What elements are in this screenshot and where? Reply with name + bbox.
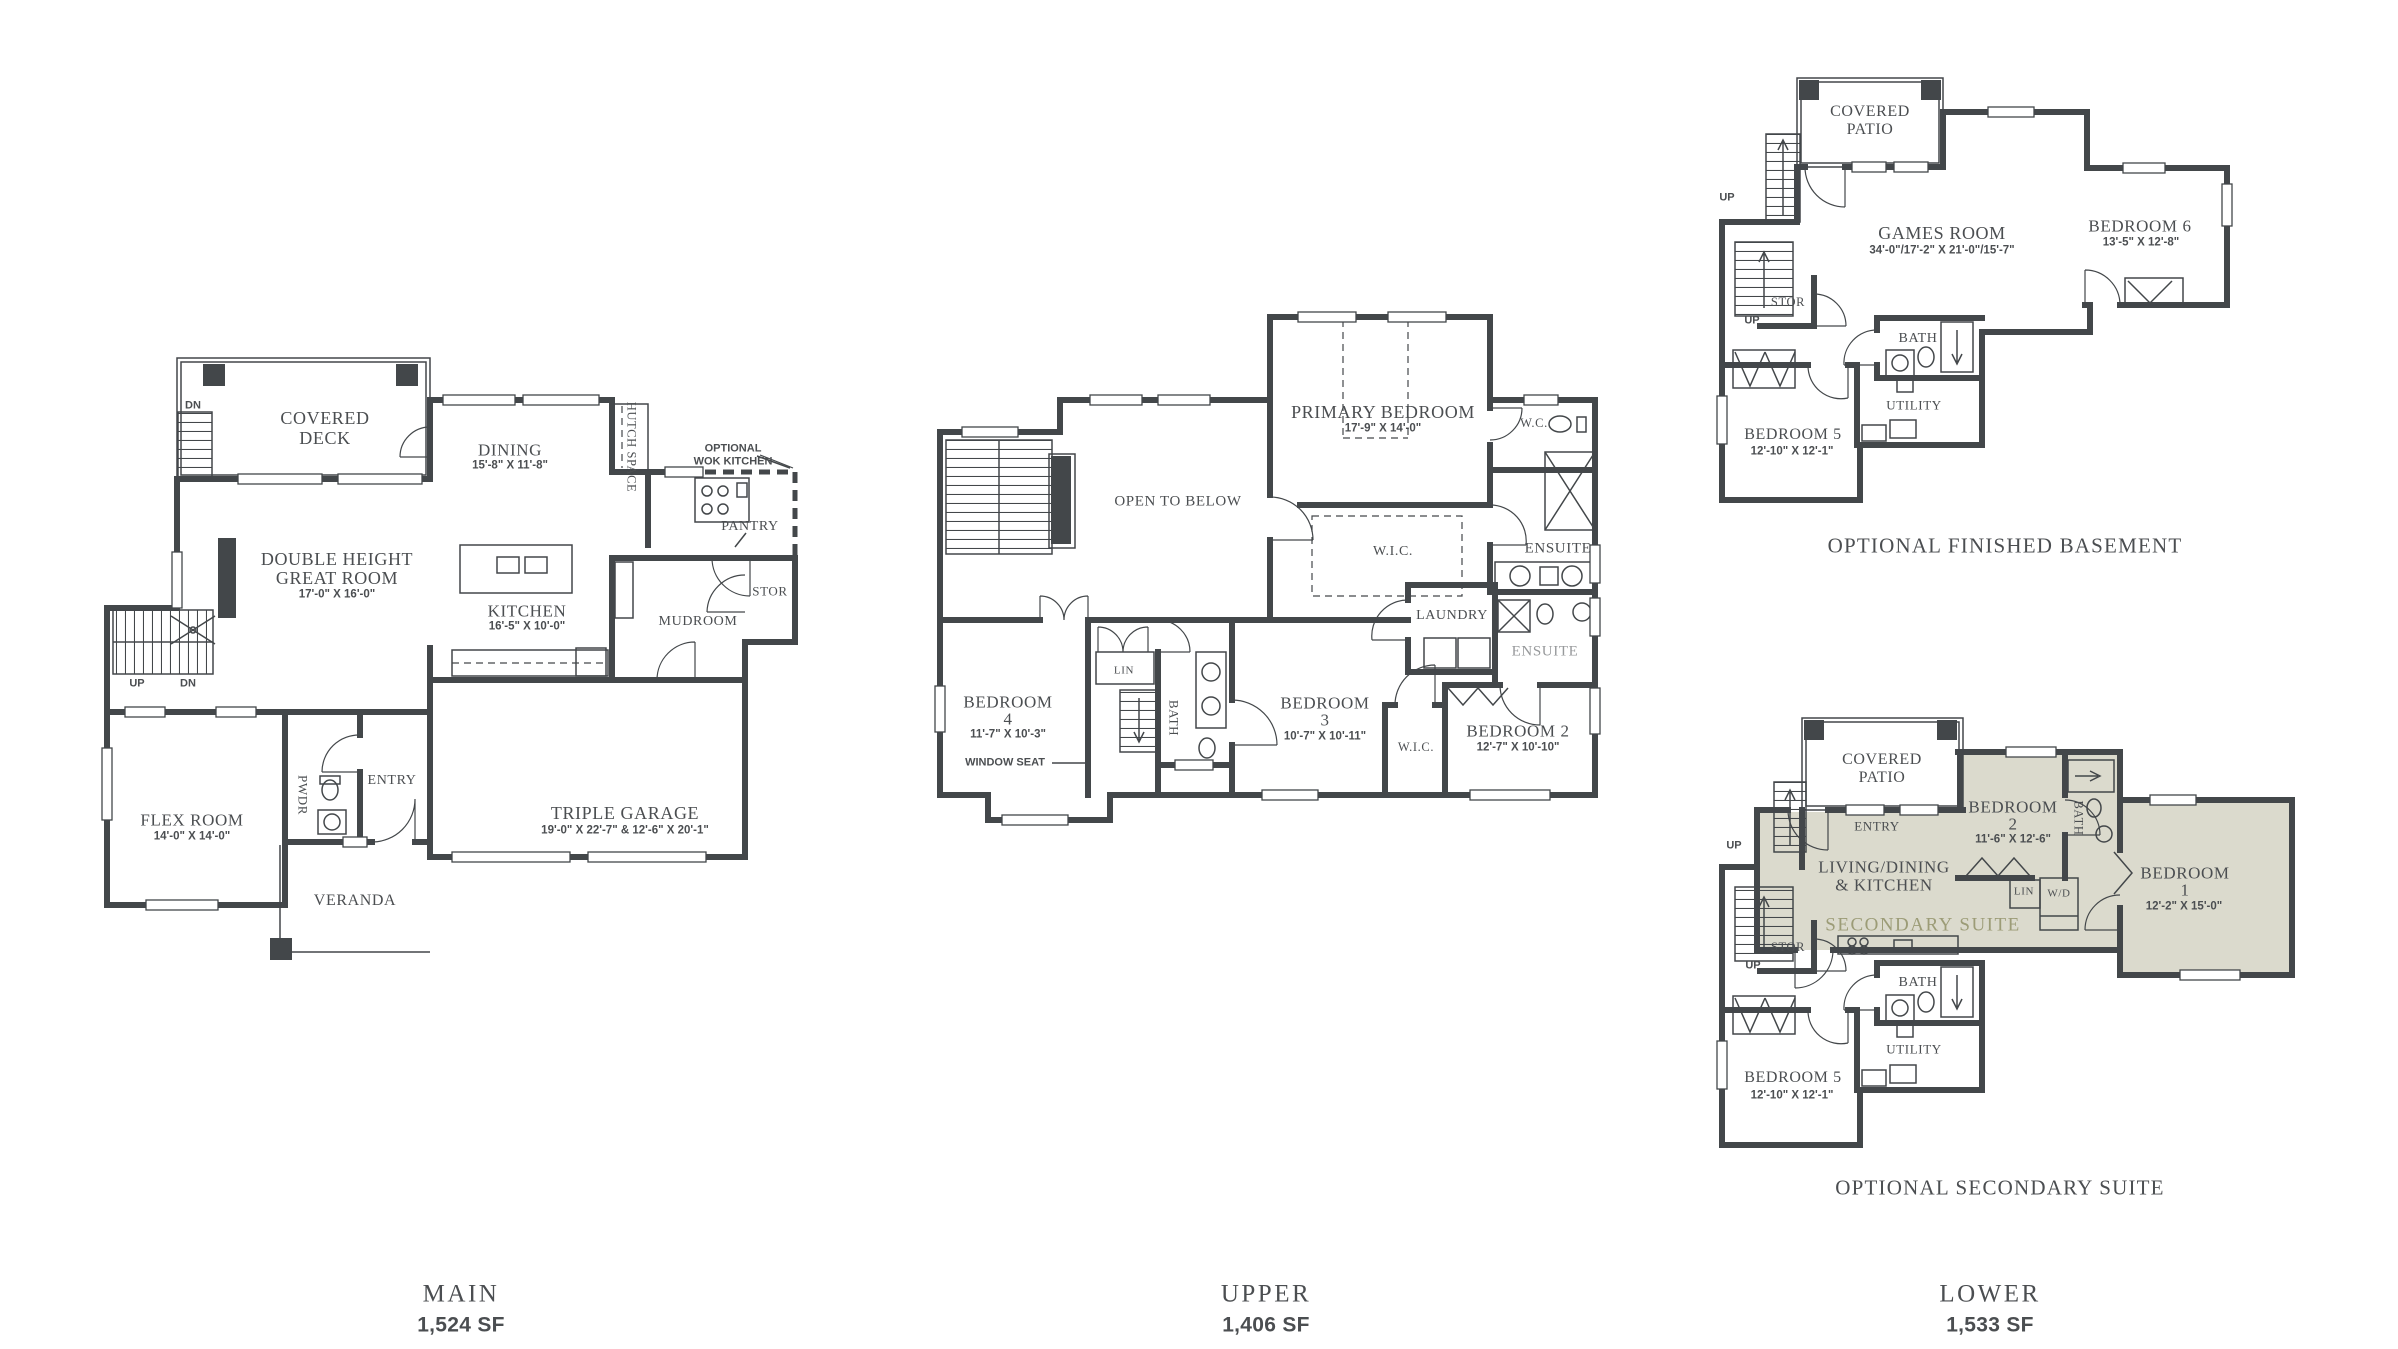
upper-wic2-label: W.I.C. bbox=[1398, 741, 1434, 754]
basement-games-room-label: GAMES ROOM bbox=[1878, 224, 2006, 242]
lower-up-inner-label: UP bbox=[1745, 961, 1760, 972]
main-kitchen-label: KITCHEN bbox=[488, 603, 567, 620]
lower-utility-label: UTILITY bbox=[1886, 1043, 1941, 1056]
upper-open-to-below-label: OPEN TO BELOW bbox=[1114, 495, 1241, 510]
main-dn-label: DN bbox=[180, 679, 196, 690]
lower-bath-suite-label: BATH bbox=[2072, 800, 2085, 835]
footer-lower-name: LOWER bbox=[1939, 1282, 2040, 1307]
main-wok-kitchen-label2: WOK KITCHEN bbox=[694, 457, 773, 468]
upper-laundry-label: LAUNDRY bbox=[1416, 609, 1488, 623]
main-great-room-dims: 17'-0" X 16'-0" bbox=[299, 589, 375, 601]
upper-optional-ensuite-label: ENSUITE bbox=[1512, 645, 1579, 660]
lower-bedroom2-num: 2 bbox=[2008, 816, 2017, 833]
main-stor-label: STOR bbox=[752, 585, 787, 598]
main-flex-room-label: FLEX ROOM bbox=[140, 812, 243, 829]
main-wok-kitchen-label: OPTIONAL bbox=[705, 444, 762, 455]
lower-wd-label: W/D bbox=[2047, 889, 2070, 900]
upper-bedroom4-num: 4 bbox=[1003, 711, 1012, 728]
floorplan-drawing bbox=[0, 0, 2398, 1349]
footer-upper-name: UPPER bbox=[1221, 1282, 1311, 1307]
basement-up-inner-label: UP bbox=[1744, 316, 1759, 327]
upper-window-seat-label: WINDOW SEAT bbox=[965, 758, 1045, 769]
basement-bedroom5-dims: 12'-10" X 12'-1" bbox=[1751, 446, 1834, 458]
main-great-room-label2: GREAT ROOM bbox=[276, 569, 398, 587]
solid-fills bbox=[203, 80, 1957, 960]
floor-plan-sheet: DN COVERED DECK DINING 15'-8" X 11'-8" H… bbox=[0, 0, 2398, 1349]
main-entry-label: ENTRY bbox=[368, 774, 417, 788]
lower-bedroom1-label: BEDROOM bbox=[2140, 865, 2229, 882]
lower-living-label2: & KITCHEN bbox=[1835, 877, 1932, 894]
upper-bedroom2-label: BEDROOM 2 bbox=[1466, 723, 1569, 740]
lower-lin-label: LIN bbox=[2014, 887, 2034, 898]
upper-bedroom4-dims: 11'-7" X 10'-3" bbox=[970, 729, 1046, 741]
upper-bedroom3-dims: 10'-7" X 10'-11" bbox=[1284, 731, 1366, 743]
basement-utility-label: UTILITY bbox=[1886, 399, 1941, 412]
main-veranda-label: VERANDA bbox=[314, 893, 396, 909]
main-pwdr-label: PWDR bbox=[297, 775, 310, 815]
footer-main-area: 1,524 SF bbox=[417, 1315, 505, 1336]
upper-bedroom2-dims: 12'-7" X 10'-10" bbox=[1477, 742, 1560, 754]
upper-wc-label: W.C. bbox=[1520, 417, 1548, 430]
basement-covered-patio-label2: PATIO bbox=[1847, 122, 1894, 138]
basement-bath-label: BATH bbox=[1899, 332, 1938, 346]
basement-bedroom5-label: BEDROOM 5 bbox=[1744, 427, 1841, 443]
upper-primary-bedroom-label: PRIMARY BEDROOM bbox=[1291, 403, 1475, 421]
main-kitchen-dims: 16'-5" X 10'-0" bbox=[489, 621, 565, 633]
lower-covered-patio-label: COVERED bbox=[1842, 752, 1922, 768]
main-plan-dashed-walls bbox=[705, 472, 795, 556]
main-pantry-label: PANTRY bbox=[721, 520, 779, 534]
upper-wic-label: W.I.C. bbox=[1373, 545, 1413, 559]
footer-lower-area: 1,533 SF bbox=[1946, 1315, 2034, 1336]
lower-bedroom5-dims: 12'-10" X 12'-1" bbox=[1751, 1090, 1834, 1102]
main-dining-dims: 15'-8" X 11'-8" bbox=[472, 460, 548, 472]
lower-bedroom5-label: BEDROOM 5 bbox=[1744, 1070, 1841, 1086]
footer-main-name: MAIN bbox=[423, 1282, 500, 1307]
main-garage-dims: 19'-0" X 22'-7" & 12'-6" X 20'-1" bbox=[541, 825, 709, 837]
main-garage-label: TRIPLE GARAGE bbox=[551, 804, 699, 822]
main-mudroom-label: MUDROOM bbox=[659, 615, 738, 629]
main-flex-room-dims: 14'-0" X 14'-0" bbox=[154, 831, 230, 843]
footer-upper-area: 1,406 SF bbox=[1222, 1315, 1310, 1336]
lower-secondary-suite-label: SECONDARY SUITE bbox=[1825, 916, 2020, 935]
upper-bedroom4-label: BEDROOM bbox=[963, 694, 1052, 711]
lower-bedroom2-label: BEDROOM bbox=[1968, 799, 2057, 816]
basement-games-room-dims: 34'-0"/17'-2" X 21'-0"/15'-7" bbox=[1869, 245, 2014, 257]
basement-up-outer-label: UP bbox=[1719, 193, 1734, 204]
main-deck-dn-label: DN bbox=[185, 401, 201, 412]
upper-bath-label: BATH bbox=[1168, 700, 1181, 736]
upper-ensuite-label: ENSUITE bbox=[1525, 542, 1592, 557]
basement-stor-label: STOR bbox=[1771, 296, 1805, 309]
main-plan-thin bbox=[113, 358, 790, 952]
lower-bedroom1-dims: 12'-2" X 15'-0" bbox=[2146, 901, 2222, 913]
basement-note: OPTIONAL FINISHED BASEMENT bbox=[1828, 536, 2183, 557]
main-covered-deck-label2: DECK bbox=[299, 429, 350, 447]
upper-primary-bedroom-dims: 17'-9" X 14'-0" bbox=[1345, 423, 1421, 435]
basement-bedroom6-label: BEDROOM 6 bbox=[2088, 218, 2191, 235]
lower-entry-label: ENTRY bbox=[1854, 820, 1900, 833]
lower-bedroom2-dims: 11'-6" X 12'-6" bbox=[1975, 834, 2051, 846]
main-dining-label: DINING bbox=[478, 442, 542, 459]
upper-bedroom3-label: BEDROOM bbox=[1280, 695, 1369, 712]
main-hutch-space-label: HUTCH SPACE bbox=[625, 402, 638, 493]
lower-covered-patio-label2: PATIO bbox=[1859, 770, 1906, 786]
lower-note: OPTIONAL SECONDARY SUITE bbox=[1835, 1178, 2164, 1199]
upper-lin-label: LIN bbox=[1114, 666, 1134, 677]
basement-plan-thin bbox=[1733, 78, 2183, 441]
basement-bedroom6-dims: 13'-5" X 12'-8" bbox=[2103, 237, 2179, 249]
lower-up-outer-label: UP bbox=[1726, 841, 1741, 852]
lower-stor-label: STOR bbox=[1771, 941, 1805, 954]
main-great-room-label: DOUBLE HEIGHT bbox=[261, 550, 413, 568]
lower-bedroom1-num: 1 bbox=[2180, 882, 2189, 899]
lower-bath-label: BATH bbox=[1899, 976, 1938, 990]
upper-bedroom3-num: 3 bbox=[1320, 712, 1329, 729]
basement-covered-patio-label: COVERED bbox=[1830, 104, 1910, 120]
main-up-label: UP bbox=[129, 679, 144, 690]
lower-living-label: LIVING/DINING bbox=[1818, 859, 1950, 876]
main-covered-deck-label: COVERED bbox=[280, 409, 369, 427]
